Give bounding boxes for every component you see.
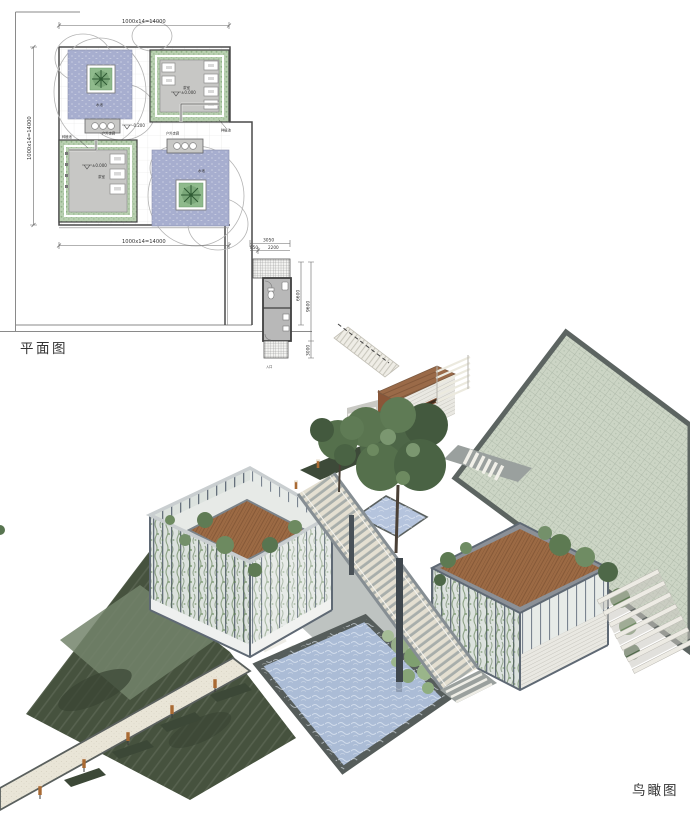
bench-br [167,139,203,153]
floor-plan: 水池 茶室 ±0.000 种植池 [0,12,314,369]
room-bl-label: 茶室 [98,174,105,179]
quadrant-pool-br: 水池 [152,150,229,226]
pergola-column [396,558,403,682]
dim-annex-a: 850 [250,245,258,250]
annex-plan: 入口 [253,259,291,369]
dim-annex-6600: 6600 [296,290,302,301]
quadrant-room-tr: 茶室 ±0.000 种植池 [150,50,232,133]
corridor-right-label: 户外走廊 [166,131,180,136]
footbridge [334,324,399,377]
pergola-column-2 [349,515,354,575]
birdseye-view: 鸟瞰图 [0,324,690,810]
sheet-canvas: 水池 茶室 ±0.000 种植池 [0,0,690,817]
plan-title: 平面图 [20,341,68,357]
dim-left: 1000x14=14000 [27,116,33,160]
architectural-sheet: 水池 茶室 ±0.000 种植池 [0,0,690,817]
planting-tr-label: 种植池 [221,128,232,133]
level-tr-text: ±0.000 [181,90,196,95]
level-bl-text: ±0.000 [92,163,107,168]
plan-tree-icon-br [181,185,201,205]
entry-label: 入口 [266,365,272,369]
dim-top: 1000x14=14000 [122,19,166,25]
quadrant-room-bl: ±0.000 茶室 种植池 [59,134,137,222]
dim-annex-9600: 9600 [306,301,312,312]
corridor-left-label: 户外走廊 [102,131,116,136]
dim-annex-total: 3050 [263,238,274,244]
level-center-text: -0.200 [132,123,145,128]
dim-bottom: 1000x14=14000 [122,239,166,245]
quadrant-pool-tl: 水池 [68,50,132,119]
furniture-bl [110,154,125,194]
dim-annex-b: 2200 [268,245,279,250]
planting-bl-label: 种植池 [62,134,73,139]
dim-annex-3000: 3000 [306,345,312,356]
render-title: 鸟瞰图 [632,783,679,799]
pool-tl-label: 水池 [96,102,103,107]
pool-br-label: 水池 [198,168,205,173]
